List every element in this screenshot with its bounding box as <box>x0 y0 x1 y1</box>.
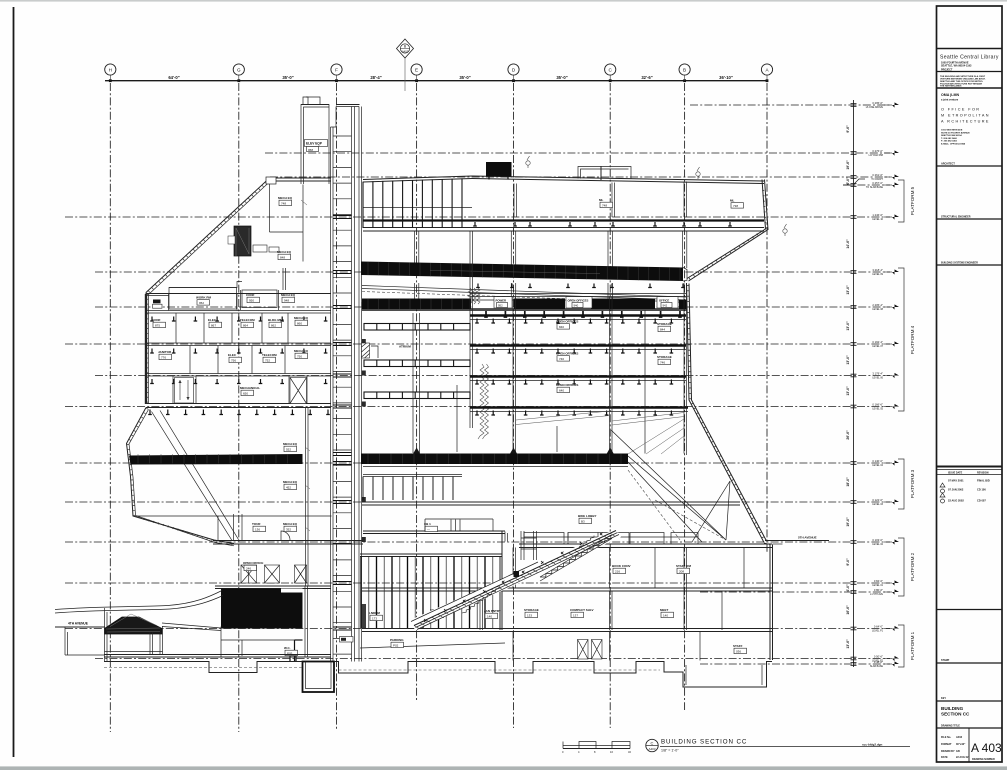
svg-text:BUILDING SECTION CC: BUILDING SECTION CC <box>661 739 747 746</box>
svg-text:DRAWING NUMBER: DRAWING NUMBER <box>972 758 995 761</box>
svg-text:ATRIUM: ATRIUM <box>399 345 411 349</box>
svg-text:CONF: CONF <box>246 293 255 297</box>
svg-text:OMA |LMN: OMA |LMN <box>941 93 959 97</box>
svg-text:OPEN OFFICES: OPEN OFFICES <box>556 383 578 387</box>
svg-text:OPEN OFFICES: OPEN OFFICES <box>556 352 578 356</box>
svg-text:864: 864 <box>243 324 248 328</box>
svg-text:35'-0": 35'-0" <box>556 75 567 80</box>
svg-text:752: 752 <box>265 359 270 363</box>
svg-text:952: 952 <box>199 301 204 305</box>
svg-text:ISSUE DATE: ISSUE DATE <box>948 472 963 475</box>
svg-text:26'-6": 26'-6" <box>846 430 850 440</box>
svg-text:352: 352 <box>286 528 291 532</box>
svg-text:L1 5TH AVE: L1 5TH AVE <box>870 593 883 596</box>
svg-text:H: H <box>109 68 112 73</box>
svg-text:13'-0": 13'-0" <box>846 321 850 331</box>
svg-text:E: E <box>415 68 418 73</box>
svg-text:ELEC: ELEC <box>208 318 217 322</box>
svg-text:OPEN OFFICES: OPEN OFFICES <box>556 320 578 324</box>
svg-text:STORAGE: STORAGE <box>657 355 672 359</box>
svg-text:848: 848 <box>280 256 285 260</box>
svg-text:MECH EQ: MECH EQ <box>277 250 292 254</box>
svg-text:DRAWN BY: DRAWN BY <box>941 750 955 753</box>
svg-text:ELEC: ELEC <box>228 353 237 357</box>
svg-text:SUITE 30 FOURTH AVENUE: SUITE 30 FOURTH AVENUE <box>941 131 970 134</box>
svg-text:867: 867 <box>211 324 216 328</box>
svg-text:F: 206 682 3461: F: 206 682 3461 <box>941 140 958 143</box>
svg-text:TELECOM: TELECOM <box>262 353 277 357</box>
svg-text:MECH EQ: MECH EQ <box>283 480 298 484</box>
svg-text:PLATFORM 2: PLATFORM 2 <box>910 552 915 581</box>
svg-text:LEVEL 03: LEVEL 03 <box>872 503 883 506</box>
svg-text:0 50'-6": 0 50'-6" <box>874 655 883 659</box>
svg-text:036: 036 <box>736 650 741 654</box>
svg-text:208: 208 <box>679 570 684 574</box>
svg-text:16'-6": 16'-6" <box>846 605 850 615</box>
svg-text:JAN PNTRY: JAN PNTRY <box>484 609 501 613</box>
svg-text:TO PARPT: TO PARPT <box>871 178 883 181</box>
svg-text:BLDG MNT: BLDG MNT <box>268 318 284 322</box>
svg-text:136: 136 <box>255 528 260 532</box>
svg-text:750: 750 <box>297 355 302 359</box>
svg-text:WORK RM: WORK RM <box>196 296 211 300</box>
svg-text:738: 738 <box>733 204 738 208</box>
svg-text:0 166'-6": 0 166'-6" <box>872 403 883 407</box>
svg-text:776: 776 <box>161 356 166 360</box>
svg-text:3 179'-4": 3 179'-4" <box>872 372 883 376</box>
svg-text:0 192'-4": 0 192'-4" <box>872 340 883 344</box>
svg-text:PARKING: PARKING <box>390 638 404 642</box>
svg-text:952: 952 <box>498 304 503 308</box>
svg-text:DRAWING TITLE: DRAWING TITLE <box>941 725 960 728</box>
svg-text:MECH EQ: MECH EQ <box>283 522 298 526</box>
svg-text:SEATTLE WA 98104: SEATTLE WA 98104 <box>941 134 962 137</box>
svg-text:748: 748 <box>602 204 607 208</box>
svg-text:TO SLAB BASE: TO SLAB BASE <box>866 186 884 189</box>
svg-text:35'-0": 35'-0" <box>459 75 470 80</box>
svg-text:MECH EQ: MECH EQ <box>294 316 309 320</box>
svg-text:LEVEL 07: LEVEL 07 <box>872 345 883 348</box>
svg-text:STAMP: STAMP <box>941 659 950 662</box>
svg-text:30"x42": 30"x42" <box>956 743 966 746</box>
svg-text:0 295'-6": 0 295'-6" <box>872 101 883 105</box>
svg-text:SECTION CC: SECTION CC <box>941 712 970 717</box>
svg-text:BOOK CONV: BOOK CONV <box>612 564 631 568</box>
svg-text:L07 RAD 958: L07 RAD 958 <box>869 154 884 157</box>
svg-text:0 261'-6": 0 261'-6" <box>872 173 883 177</box>
svg-text:0 103'-0": 0 103'-0" <box>872 538 883 542</box>
svg-text:0 84'-6": 0 84'-6" <box>874 579 883 583</box>
svg-text:A403: A403 <box>402 49 409 53</box>
svg-text:REVISION: REVISION <box>977 472 989 475</box>
svg-text:173: 173 <box>372 617 377 621</box>
svg-text:a joint venture: a joint venture <box>941 99 959 102</box>
svg-text:640: 640 <box>559 389 564 393</box>
svg-text:ML: ML <box>730 199 734 203</box>
svg-text:860: 860 <box>297 322 302 326</box>
svg-text:3 218'-4": 3 218'-4" <box>872 268 883 272</box>
svg-text:9'-0": 9'-0" <box>846 558 850 566</box>
svg-text:22 AUG 2002: 22 AUG 2002 <box>948 499 964 503</box>
svg-text:A403: A403 <box>648 747 655 751</box>
svg-text:STRUCTURAL ENGINEER: STRUCTURAL ENGINEER <box>941 216 971 219</box>
svg-text:0 48'-0": 0 48'-0" <box>874 660 883 664</box>
svg-text:BUILDING: BUILDING <box>941 706 964 711</box>
svg-text:SEATTLE, WA 98104-1193: SEATTLE, WA 98104-1193 <box>941 65 972 68</box>
svg-text:BIKE LOBBY: BIKE LOBBY <box>578 514 597 518</box>
svg-text:940: 940 <box>574 304 579 308</box>
svg-text:PLATFORM 3: PLATFORM 3 <box>910 469 915 498</box>
svg-text:FINAL BID: FINAL BID <box>977 479 990 483</box>
svg-text:840: 840 <box>559 325 564 329</box>
svg-text:scc-bldg2.dgn: scc-bldg2.dgn <box>862 743 883 747</box>
svg-text:B: B <box>683 68 686 73</box>
svg-text:JANITOR: JANITOR <box>158 350 172 354</box>
svg-text:SLAB BASE: SLAB BASE <box>870 665 884 668</box>
svg-text:140: 140 <box>663 614 668 618</box>
svg-text:2 205'-4": 2 205'-4" <box>872 303 883 307</box>
svg-text:PLATFORM 4: PLATFORM 4 <box>910 325 915 354</box>
svg-text:844: 844 <box>660 328 665 332</box>
svg-text:958: 958 <box>308 148 313 152</box>
svg-text:MECH EQ: MECH EQ <box>281 293 296 297</box>
svg-text:36'-10": 36'-10" <box>719 75 733 80</box>
svg-text:0 276'-0": 0 276'-0" <box>872 149 883 153</box>
svg-text:MECH EQ: MECH EQ <box>278 196 293 200</box>
svg-text:LEVEL 04: LEVEL 04 <box>872 464 883 467</box>
svg-text:246: 246 <box>246 567 251 571</box>
svg-text:0 80'-6": 0 80'-6" <box>874 588 883 592</box>
svg-text:13'-0": 13'-0" <box>846 285 850 295</box>
svg-text:MECHANICAL: MECHANICAL <box>240 386 260 390</box>
svg-text:COMPACT SHLV: COMPACT SHLV <box>570 608 594 612</box>
svg-text:A 403: A 403 <box>971 741 1002 755</box>
svg-text:133: 133 <box>527 614 532 618</box>
svg-text:07 MAY 2001: 07 MAY 2001 <box>948 479 964 483</box>
svg-text:748: 748 <box>281 202 286 206</box>
svg-text:140: 140 <box>487 615 492 619</box>
svg-text:T: 206 682 3460: T: 206 682 3460 <box>941 137 958 140</box>
svg-text:137: 137 <box>573 614 578 618</box>
svg-text:756: 756 <box>231 359 236 363</box>
svg-text:1015 WESTERN AVE: 1015 WESTERN AVE <box>941 129 963 132</box>
svg-text:19'-6": 19'-6" <box>846 160 850 170</box>
svg-text:LEVEL 08: LEVEL 08 <box>872 308 883 311</box>
svg-text:TOUR: TOUR <box>252 522 261 526</box>
svg-text:948: 948 <box>284 299 289 303</box>
svg-text:13'-0": 13'-0" <box>846 386 850 396</box>
svg-text:13'-6": 13'-6" <box>846 639 850 649</box>
svg-text:452: 452 <box>286 486 291 490</box>
svg-text:35'-0": 35'-0" <box>282 75 293 80</box>
svg-text:STAFF RM: STAFF RM <box>676 564 691 568</box>
svg-text:—: — <box>427 528 430 532</box>
svg-text:E-MAIL: OFFICE@OMA: E-MAIL: OFFICE@OMA <box>941 143 966 146</box>
svg-text:0 257'-0": 0 257'-0" <box>872 181 883 185</box>
svg-text:0 64'-0": 0 64'-0" <box>874 625 883 629</box>
svg-text:LEVEL 01: LEVEL 01 <box>872 584 883 587</box>
svg-text:G: G <box>237 68 241 73</box>
svg-text:O FFICE FOR: O FFICE FOR <box>941 108 980 112</box>
svg-text:LEVEL 09: LEVEL 09 <box>872 273 883 276</box>
svg-text:9'-6": 9'-6" <box>846 125 850 133</box>
svg-text:07 JAN 2002: 07 JAN 2002 <box>948 488 964 492</box>
svg-text:DATE: DATE <box>941 756 948 759</box>
svg-text:MECH EQ: MECH EQ <box>294 349 309 353</box>
svg-text:CD 007: CD 007 <box>977 499 986 503</box>
svg-text:CD 100: CD 100 <box>977 488 986 492</box>
svg-text:740: 740 <box>559 357 564 361</box>
svg-text:A403: A403 <box>956 736 963 739</box>
svg-text:STORAGE: STORAGE <box>524 608 539 612</box>
svg-text:1/8" = 1'-0": 1/8" = 1'-0" <box>661 749 679 753</box>
svg-text:KEY: KEY <box>941 697 946 700</box>
svg-text:LNDRM: LNDRM <box>369 611 380 615</box>
svg-text:THE NETHERLANDS: THE NETHERLANDS <box>940 85 962 88</box>
svg-text:0 122'-0": 0 122'-0" <box>872 498 883 502</box>
svg-text:6'-0": 6'-0" <box>846 177 850 185</box>
svg-text:F: F <box>335 68 338 73</box>
svg-text:942: 942 <box>663 304 668 308</box>
svg-text:P02: P02 <box>393 644 399 648</box>
svg-text:4'-0": 4'-0" <box>846 584 850 592</box>
svg-text:M ETROPOLITAN: M ETROPOLITAN <box>941 114 990 118</box>
svg-text:OPEN OFFICE: OPEN OFFICE <box>243 561 263 565</box>
svg-text:4TH AVENUE: 4TH AVENUE <box>68 622 88 626</box>
svg-text:MEET: MEET <box>660 608 669 612</box>
svg-text:TELECOM: TELECOM <box>240 318 255 322</box>
svg-text:32'-6": 32'-6" <box>641 75 652 80</box>
svg-text:A RCHITECTURE: A RCHITECTURE <box>941 120 990 124</box>
svg-text:B3: B3 <box>581 520 585 524</box>
svg-text:746: 746 <box>660 361 665 365</box>
svg-text:FORMAT: FORMAT <box>941 743 952 746</box>
svg-text:LEVEL P1: LEVEL P1 <box>872 630 884 633</box>
svg-text:216: 216 <box>615 570 620 574</box>
svg-text:13'-0": 13'-0" <box>846 355 850 365</box>
svg-text:ARCHITECT: ARCHITECT <box>941 163 955 166</box>
svg-text:28'-4": 28'-4" <box>370 75 381 80</box>
svg-text:GB: GB <box>956 750 960 753</box>
svg-text:W.C.: W.C. <box>284 646 291 650</box>
svg-text:LEVEL 05: LEVEL 05 <box>872 408 883 411</box>
svg-text:14'-6": 14'-6" <box>846 239 850 249</box>
svg-text:64'-0": 64'-0" <box>168 75 179 80</box>
svg-text:CONF: CONF <box>152 318 161 322</box>
svg-text:22 AUG 02: 22 AUG 02 <box>956 756 969 759</box>
svg-text:Seattle Central Library: Seattle Central Library <box>940 55 999 61</box>
svg-text:POWER: POWER <box>496 299 507 303</box>
svg-text:18'-0": 18'-0" <box>846 477 850 487</box>
svg-text:STORAGE: STORAGE <box>657 322 672 326</box>
svg-text:PLATFORM 1: PLATFORM 1 <box>910 631 915 660</box>
svg-text:FILE No.: FILE No. <box>941 736 951 739</box>
svg-text:1 246'-6": 1 246'-6" <box>872 213 883 217</box>
svg-text:PROJECT: PROJECT <box>941 68 953 71</box>
svg-text:875: 875 <box>155 324 160 328</box>
svg-text:L6 ONE ABOVE: L6 ONE ABOVE <box>866 106 884 109</box>
svg-text:650: 650 <box>243 392 248 396</box>
svg-text:STAFF: STAFF <box>733 644 743 648</box>
svg-text:5TH AVENUE: 5TH AVENUE <box>798 536 817 540</box>
svg-text:552: 552 <box>286 448 291 452</box>
svg-text:PLATFORM 5: PLATFORM 5 <box>910 186 915 215</box>
svg-text:LEVEL 06: LEVEL 06 <box>872 377 883 380</box>
svg-text:OPEN OFFICES: OPEN OFFICES <box>568 299 589 303</box>
svg-text:ML: ML <box>599 198 603 202</box>
svg-text:19'-0": 19'-0" <box>846 517 850 527</box>
svg-text:C: C <box>651 740 654 745</box>
svg-text:0 140'-0": 0 140'-0" <box>872 459 883 463</box>
svg-text:ELEV EQP: ELEV EQP <box>306 142 323 146</box>
svg-text:950: 950 <box>249 299 254 303</box>
svg-text:MECH EQ: MECH EQ <box>283 442 298 446</box>
svg-text:LEVEL 10: LEVEL 10 <box>872 218 883 221</box>
svg-text:OFFICE: OFFICE <box>659 299 669 303</box>
svg-text:LEVEL 02: LEVEL 02 <box>872 543 883 546</box>
svg-text:BUILDING SYSTEMS ENGINEER: BUILDING SYSTEMS ENGINEER <box>941 262 978 265</box>
svg-text:862: 862 <box>271 324 276 328</box>
